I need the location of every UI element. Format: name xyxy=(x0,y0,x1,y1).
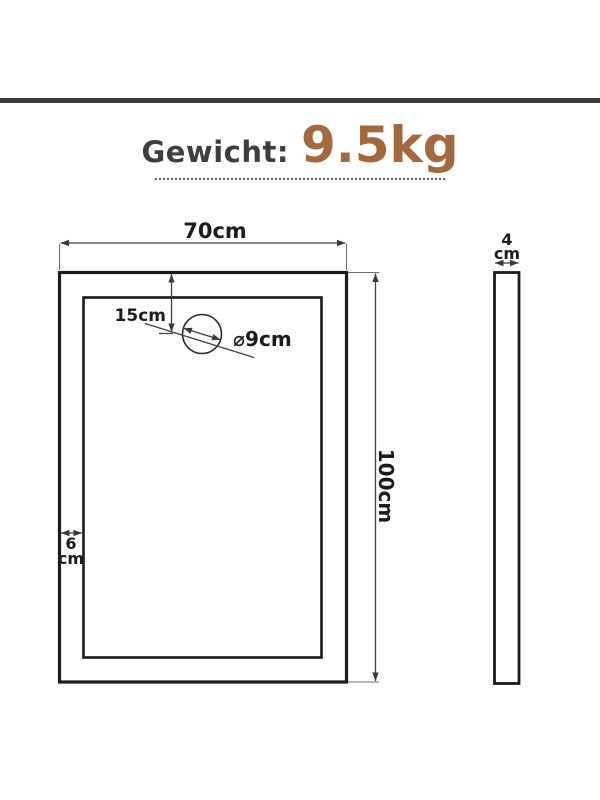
side-thickness-unit: cm xyxy=(494,244,520,263)
drain-diameter-label: ⌀9cm xyxy=(233,327,292,351)
dimension-diagram: 70cm 100cm 15cm ⌀9cm 6 cm 4 cm xyxy=(0,0,600,800)
front-view-inner-rect xyxy=(84,298,322,658)
product-dimensions-page: Gewicht: 9.5kg 70cm 100cm 15cm ⌀9cm xyxy=(0,0,600,800)
drain-offset-label: 15cm xyxy=(115,306,166,326)
border-width-unit: cm xyxy=(58,549,84,568)
front-width-label: 70cm xyxy=(183,219,247,243)
side-view-rect xyxy=(495,273,520,684)
front-height-label: 100cm xyxy=(374,449,398,523)
